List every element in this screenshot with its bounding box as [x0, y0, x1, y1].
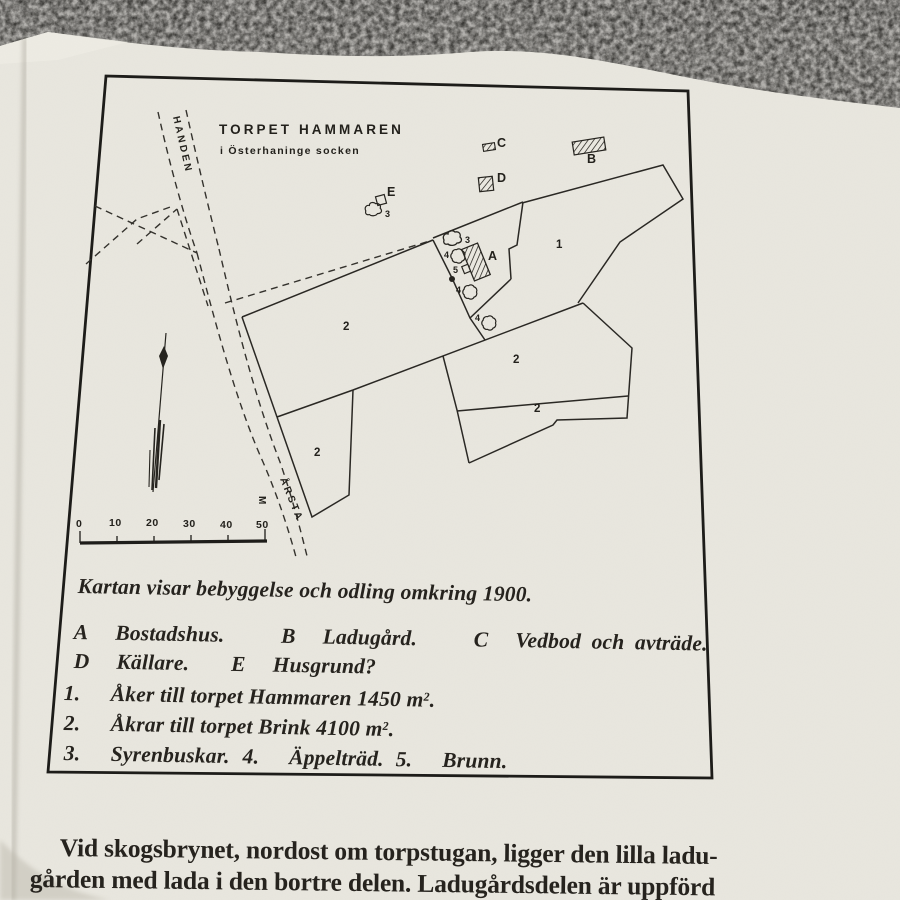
legend-desc: Ladugård. — [322, 625, 417, 651]
item-number: 3. — [64, 741, 111, 767]
legend-desc: Bostadshus. — [115, 621, 225, 647]
legend-items-3-4-5: 3.Syrenbuskar.4.Äppelträd.5.Brunn. — [64, 741, 508, 774]
legend-pair: ABostadshus. — [74, 620, 225, 648]
item-text: Äppelträd. — [289, 745, 384, 771]
legend-buildings-line2: DKällare.EHusgrund? — [74, 649, 377, 680]
item-text: Brunn. — [442, 748, 508, 773]
item-tail: . — [429, 688, 435, 712]
item-number: 4. — [242, 744, 259, 768]
item-text: Åkrar till torpet Brink 4100 m — [111, 712, 383, 741]
legend-pair: CVedbod och avträde. — [474, 627, 708, 656]
legend-item-2: 2.Åkrar till torpet Brink 4100 m2. — [64, 711, 395, 742]
text-overlay: Kartan visar bebyggelse och odling omkri… — [0, 0, 900, 900]
item-number: 1. — [64, 681, 111, 707]
legend-key: E — [231, 652, 246, 676]
item-number: 2. — [64, 711, 111, 737]
legend-key: B — [281, 624, 296, 648]
item-text: Åker till torpet Hammaren 1450 m — [111, 682, 424, 712]
legend-pair: BLadugård. — [281, 624, 417, 651]
item-text: Syrenbuskar. — [111, 742, 230, 768]
legend-item-1: 1.Åker till torpet Hammaren 1450 m2. — [64, 681, 436, 713]
item-number: 5. — [396, 747, 413, 771]
legend-desc: Husgrund? — [272, 653, 376, 679]
book-page-photo: 0 10 20 30 40 50 TORPET HAMMAREN i Öster… — [0, 0, 900, 900]
legend-desc: Vedbod och avträde. — [515, 628, 708, 656]
figure-caption-intro: Kartan visar bebyggelse och odling omkri… — [78, 574, 533, 607]
legend-key: C — [474, 627, 489, 651]
item-tail: . — [389, 717, 395, 741]
legend-desc: Källare. — [116, 650, 189, 675]
legend-key: A — [74, 620, 89, 644]
legend-key: D — [74, 649, 90, 673]
